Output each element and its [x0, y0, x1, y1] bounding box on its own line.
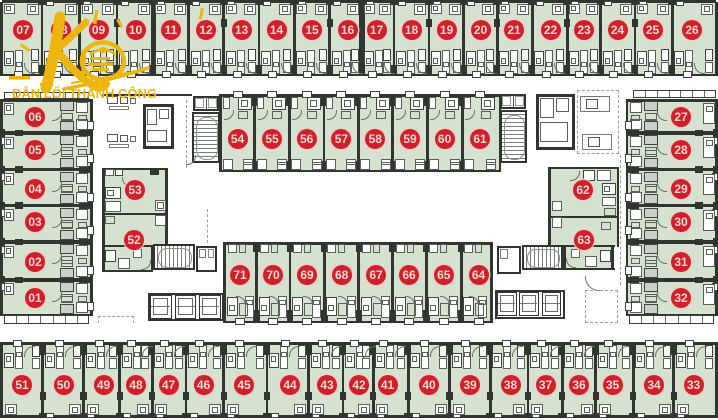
svg-text:DẪN LỐI THÀNH CÔNG: DẪN LỐI THÀNH CÔNG	[12, 86, 157, 101]
